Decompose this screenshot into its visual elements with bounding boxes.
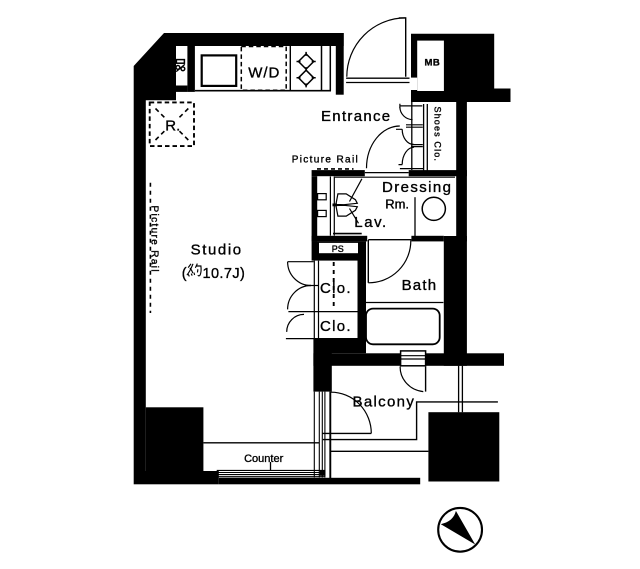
svg-text:Lav.: Lav. bbox=[354, 214, 387, 231]
svg-text:Studio: Studio bbox=[191, 241, 243, 258]
svg-text:(: ( bbox=[182, 266, 187, 282]
svg-text:MB: MB bbox=[425, 58, 441, 69]
svg-text:R.: R. bbox=[165, 118, 180, 135]
svg-text:Clo.: Clo. bbox=[320, 318, 352, 335]
svg-text:Bath: Bath bbox=[402, 277, 438, 294]
svg-text:Dressing: Dressing bbox=[382, 179, 452, 196]
svg-text:W/D: W/D bbox=[248, 65, 280, 82]
svg-text:Clo.: Clo. bbox=[320, 280, 352, 297]
svg-text:Picture Rail: Picture Rail bbox=[292, 155, 359, 166]
svg-text:10.7J): 10.7J) bbox=[203, 266, 246, 282]
svg-text:Counter: Counter bbox=[244, 453, 283, 465]
svg-text:Balcony: Balcony bbox=[353, 393, 416, 410]
svg-text:Entrance: Entrance bbox=[321, 108, 391, 125]
svg-text:Shoes Clo.: Shoes Clo. bbox=[433, 107, 443, 163]
svg-text:PS: PS bbox=[332, 244, 344, 254]
svg-text:Rm.: Rm. bbox=[385, 197, 409, 212]
